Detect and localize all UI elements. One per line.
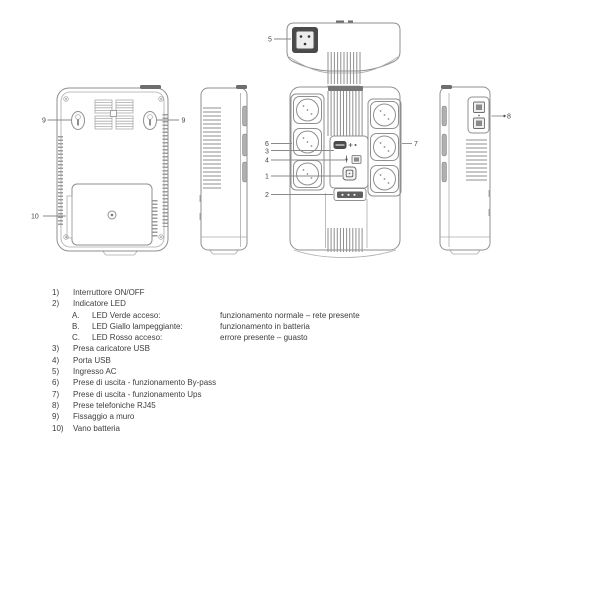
wall-mount-slot-right (144, 112, 157, 130)
callout-number: 1 (265, 174, 269, 181)
legend-item-number: 7) (52, 389, 73, 400)
callout-number: 4 (265, 158, 269, 165)
ac-inlet-pin (308, 35, 311, 38)
right-side-view: 8 (440, 85, 511, 254)
legend-item-text: Prese di uscita - funzionamento Ups (73, 390, 202, 399)
legend-item-text: Prese di uscita - funzionamento By-pass (73, 378, 216, 387)
front-top-slats (328, 91, 362, 136)
wall-mount-slot-left (72, 112, 85, 130)
led-indicator (334, 189, 366, 201)
legend-item-number: 2) (52, 298, 73, 309)
legend-item: 5)Ingresso AC (52, 366, 360, 377)
legend-item-number: 5) (52, 366, 73, 377)
rear-foot (103, 252, 137, 256)
led-state-label: LED Rosso acceso: (92, 332, 220, 343)
callout-led-indicator: 2 (265, 192, 333, 199)
front-view: 6 3 4 1 2 7 (265, 86, 418, 258)
led-state-label: LED Giallo lampeggiante: (92, 321, 220, 332)
legend-item: 2)Indicatore LED (52, 298, 360, 309)
control-panel (330, 136, 368, 188)
led-state-letter: B. (72, 321, 92, 332)
led-state-letter: A. (72, 310, 92, 321)
front-bottom-slats (328, 228, 362, 252)
left-side-top-tab (236, 85, 247, 89)
callout-rj45: 8 (492, 114, 512, 121)
right-side-notch (489, 190, 491, 197)
right-side-top-tab (441, 85, 452, 89)
legend-led-state: A.LED Verde acceso:funzionamento normale… (52, 310, 360, 321)
legend-item-number: 9) (52, 411, 73, 422)
led-state-letter: C. (72, 332, 92, 343)
manual-page: 5 (0, 0, 600, 600)
legend-item: 3)Presa caricatore USB (52, 343, 360, 354)
rear-view: 9 9 10 (31, 85, 186, 255)
ac-inlet-pin (300, 35, 303, 38)
legend-item-text: Indicatore LED (73, 299, 126, 308)
led-state-desc: errore presente – guasto (220, 333, 308, 342)
callout-number: 2 (265, 192, 269, 199)
legend-item: 8)Prese telefoniche RJ45 (52, 400, 360, 411)
power-switch (343, 167, 356, 180)
legend-item-number: 4) (52, 355, 73, 366)
callout-number: 9 (182, 118, 186, 125)
right-side-edge-bumps (442, 106, 447, 182)
right-side-vent-slats (466, 140, 487, 180)
ups-views-diagram: 5 (0, 0, 600, 282)
rear-vent-grid (95, 100, 133, 129)
legend-item-number: 3) (52, 343, 73, 354)
legend-item: 1)Interruttore ON/OFF (52, 287, 360, 298)
legend-item: 6)Prese di uscita - funzionamento By-pas… (52, 377, 360, 388)
callout-number: 9 (42, 118, 46, 125)
led-state-desc: funzionamento in batteria (220, 322, 310, 331)
legend-item-text: Vano batteria (73, 424, 120, 433)
left-side-notch (200, 195, 202, 202)
legend-list: 1)Interruttore ON/OFF 2)Indicatore LED A… (52, 287, 360, 434)
callout-number: 10 (31, 214, 39, 221)
callout-number: 5 (268, 37, 272, 44)
legend-item-text: Interruttore ON/OFF (73, 288, 145, 297)
callout-ups-outlets: 7 (402, 141, 418, 148)
led-state-desc: funzionamento normale – rete presente (220, 311, 360, 320)
dot-mark (355, 144, 357, 146)
legend-item-number: 1) (52, 287, 73, 298)
right-side-foot (450, 251, 480, 255)
legend-item-text: Porta USB (73, 356, 111, 365)
legend-item-text: Fissaggio a muro (73, 412, 134, 421)
led-state-label: LED Verde acceso: (92, 310, 220, 321)
legend-item-number: 8) (52, 400, 73, 411)
front-base-curve (294, 250, 396, 258)
legend-item-number: 6) (52, 377, 73, 388)
top-view: 5 (268, 21, 400, 87)
top-view-vent-slats (328, 52, 360, 84)
callout-number: 3 (265, 149, 269, 156)
callout-wall-mount-right: 9 (157, 118, 186, 125)
callout-ac-input: 5 (268, 37, 291, 44)
left-side-edge-bumps (243, 106, 248, 182)
callout-bypass-outlets: 6 (265, 141, 292, 148)
legend-led-state: C.LED Rosso acceso:errore presente – gua… (52, 332, 360, 343)
corner-screws (64, 97, 164, 240)
legend-item: 9)Fissaggio a muro (52, 411, 360, 422)
legend-item: 4)Porta USB (52, 355, 360, 366)
rj45-ports (468, 97, 489, 133)
left-side-foot (210, 251, 238, 255)
callout-number: 8 (507, 114, 511, 121)
rear-top-tab (140, 85, 161, 89)
left-side-vent-slats (203, 108, 221, 188)
top-view-cap-ticks (336, 21, 353, 23)
legend-led-state: B.LED Giallo lampeggiante:funzionamento … (52, 321, 360, 332)
legend-item-text: Presa caricatore USB (73, 344, 150, 353)
ac-inlet-pin (304, 43, 307, 46)
legend-item-text: Prese telefoniche RJ45 (73, 401, 156, 410)
legend-item: 7)Prese di uscita - funzionamento Ups (52, 389, 360, 400)
battery-compartment (67, 184, 155, 245)
callout-number: 7 (414, 141, 418, 148)
legend-item-text: Ingresso AC (73, 367, 117, 376)
usb-port (345, 156, 361, 164)
left-side-notch (200, 213, 202, 220)
legend-item: 10)Vano batteria (52, 423, 360, 434)
right-side-notch (489, 209, 491, 216)
legend-item-number: 10) (52, 423, 73, 434)
ups-outlet-column (368, 99, 401, 196)
plus-mark (349, 143, 353, 147)
front-top-cap (328, 86, 363, 91)
ac-inlet (292, 27, 318, 53)
ac-inlet-socket (296, 31, 314, 49)
callout-number: 6 (265, 141, 269, 148)
left-side-view (200, 85, 247, 254)
